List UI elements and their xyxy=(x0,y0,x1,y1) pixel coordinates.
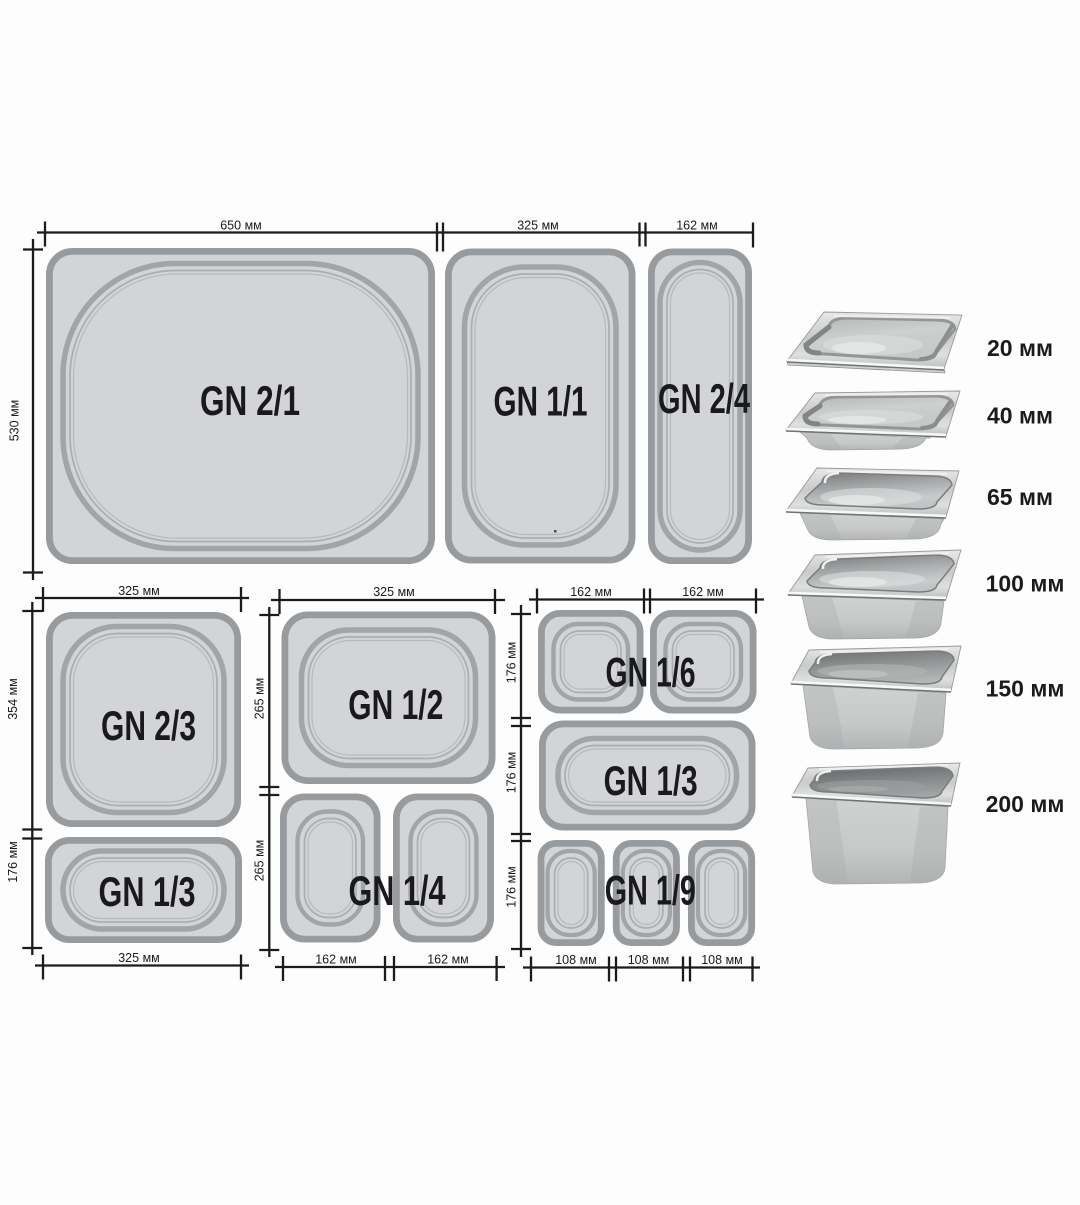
svg-text:100 мм: 100 мм xyxy=(986,571,1065,597)
svg-text:354 мм: 354 мм xyxy=(6,678,20,720)
svg-text:176 мм: 176 мм xyxy=(6,841,20,883)
svg-text:GN 1/1: GN 1/1 xyxy=(494,378,588,425)
svg-text:GN 2/4: GN 2/4 xyxy=(658,375,750,422)
svg-text:108 мм: 108 мм xyxy=(701,953,743,967)
svg-text:150 мм: 150 мм xyxy=(986,676,1065,702)
svg-text:108 мм: 108 мм xyxy=(628,953,670,967)
svg-text:530 мм: 530 мм xyxy=(8,400,22,442)
svg-text:265 мм: 265 мм xyxy=(253,678,267,720)
svg-text:176 мм: 176 мм xyxy=(505,866,519,908)
svg-text:176 мм: 176 мм xyxy=(505,752,519,794)
svg-text:108 мм: 108 мм xyxy=(555,953,597,967)
svg-text:200 мм: 200 мм xyxy=(986,791,1065,817)
svg-text:GN 1/3: GN 1/3 xyxy=(604,757,698,804)
svg-text:325 мм: 325 мм xyxy=(118,584,160,598)
svg-text:162 мм: 162 мм xyxy=(676,219,718,233)
svg-text:162 мм: 162 мм xyxy=(682,585,724,599)
svg-text:162 мм: 162 мм xyxy=(570,585,612,599)
svg-text:GN 1/9: GN 1/9 xyxy=(605,867,696,914)
svg-text:325 мм: 325 мм xyxy=(118,951,160,965)
svg-text:40 мм: 40 мм xyxy=(987,403,1053,429)
svg-text:265 мм: 265 мм xyxy=(253,840,267,882)
svg-text:325 мм: 325 мм xyxy=(517,219,559,233)
svg-text:GN 1/4: GN 1/4 xyxy=(349,867,446,914)
svg-text:162 мм: 162 мм xyxy=(315,953,357,967)
svg-text:325 мм: 325 мм xyxy=(373,585,415,599)
svg-text:GN 2/3: GN 2/3 xyxy=(101,702,196,749)
svg-text:20 мм: 20 мм xyxy=(987,335,1053,361)
svg-text:GN 1/3: GN 1/3 xyxy=(99,868,196,915)
svg-text:GN 1/2: GN 1/2 xyxy=(348,681,443,728)
svg-text:GN 2/1: GN 2/1 xyxy=(200,377,300,424)
svg-text:162 мм: 162 мм xyxy=(427,953,469,967)
svg-text:GN 1/6: GN 1/6 xyxy=(606,649,696,696)
svg-text:65 мм: 65 мм xyxy=(987,484,1053,510)
svg-text:650 мм: 650 мм xyxy=(220,219,262,233)
svg-text:176 мм: 176 мм xyxy=(505,642,519,684)
